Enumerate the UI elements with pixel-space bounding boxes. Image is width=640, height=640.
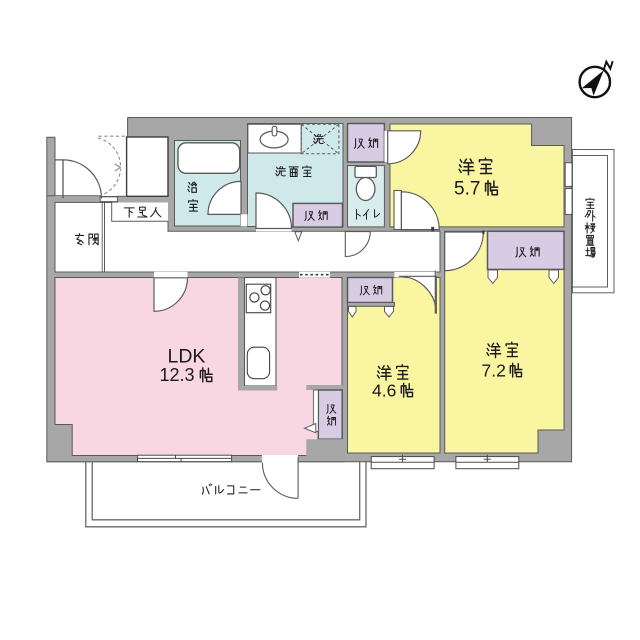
svg-text:5.7: 5.7 — [454, 179, 480, 200]
svg-text:4.6: 4.6 — [372, 380, 396, 400]
svg-text:12.3: 12.3 — [160, 365, 195, 385]
svg-text:LDK: LDK — [168, 346, 206, 368]
svg-text:7.2: 7.2 — [482, 360, 506, 380]
